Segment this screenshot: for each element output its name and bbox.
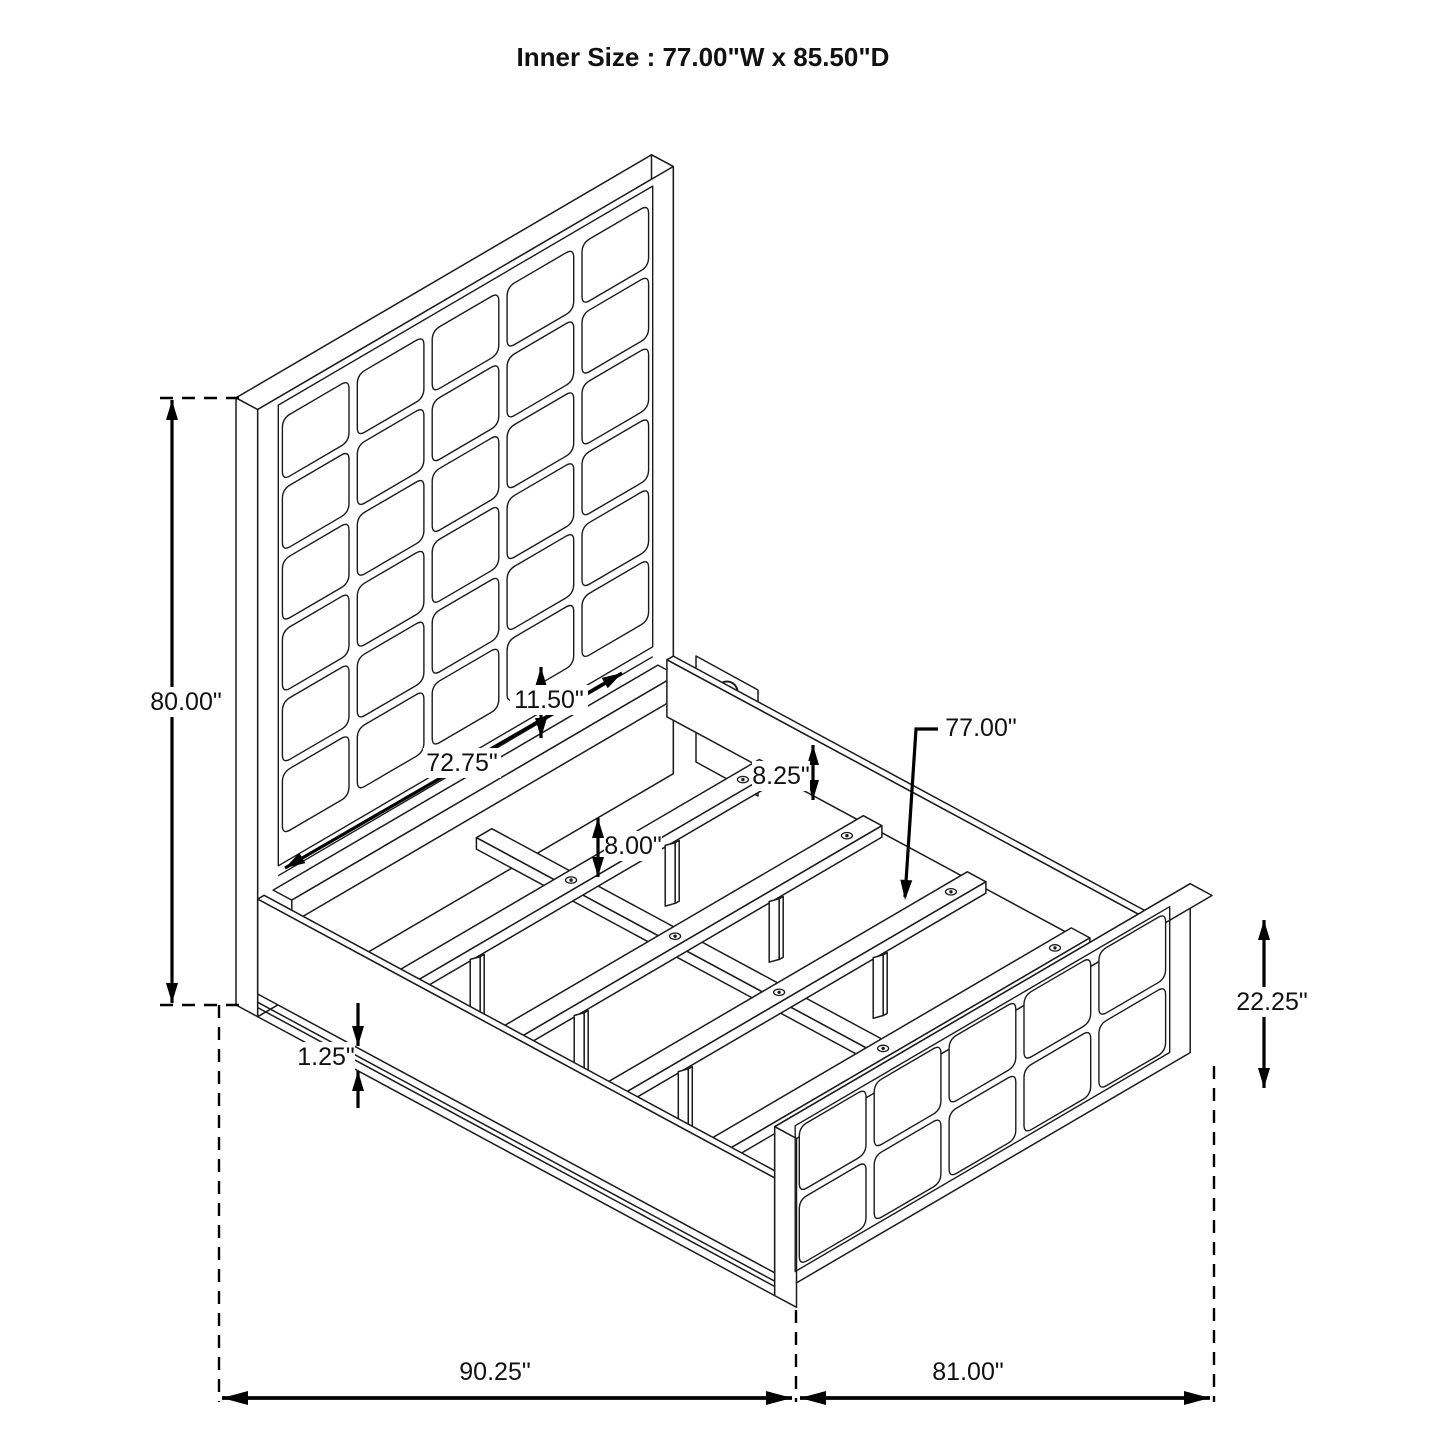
screw-dot: [881, 1047, 884, 1050]
dim-label-22-25: 22.25": [1236, 988, 1307, 1016]
dim-slat-length: 77.00": [942, 713, 1020, 743]
dim-label-72-75: 72.75": [426, 749, 497, 777]
screw-dot: [949, 890, 952, 893]
inner-size-title: Inner Size : 77.00"W x 85.50"D: [517, 42, 890, 72]
dim-footboard-height: 22.25": [1233, 987, 1311, 1017]
line-art-shape: [665, 843, 675, 907]
dim-rail-top-to-slat: 8.25": [752, 761, 810, 791]
dimension-arrowhead: [1258, 920, 1270, 940]
line-art-shape: [675, 841, 679, 904]
dimension-arrowhead: [1184, 1391, 1210, 1405]
bed-dimension-diagram: Inner Size : 77.00"W x 85.50"D 80.00" 72…: [0, 0, 1445, 1445]
dim-label-1-25: 1.25": [297, 1043, 355, 1071]
screw-dot: [845, 834, 848, 837]
dimension-arrowhead: [766, 1391, 792, 1405]
dimension-arrowhead: [166, 983, 178, 1003]
line-art-shape: [236, 398, 258, 1017]
dim-label-77-00: 77.00": [945, 714, 1016, 742]
dimension-arrowhead: [800, 1391, 826, 1405]
line-art-shape: [883, 953, 887, 1016]
diagram-page: Inner Size : 77.00"W x 85.50"D 80.00" 72…: [0, 0, 1445, 1445]
bed-line-art: [160, 155, 1270, 1405]
screw-dot: [673, 934, 676, 937]
dimension-arrowhead: [166, 400, 178, 420]
dim-label-90-25: 90.25": [459, 1358, 530, 1386]
dim-slat-leg-height: 8.00": [604, 831, 662, 861]
line-art-shape: [584, 1011, 588, 1074]
line-art-shape: [769, 899, 779, 963]
line-art-shape: [480, 955, 484, 1018]
line-art-shape: [775, 1127, 797, 1308]
dim-headboard-height: 80.00": [147, 687, 225, 717]
screw-dot: [1053, 946, 1056, 949]
line-art-shape: [688, 1067, 692, 1130]
dimension-arrowhead: [352, 1071, 364, 1091]
dim-overall-depth: 90.25": [459, 1358, 530, 1386]
dim-panel-to-rail-gap: 11.50": [510, 685, 588, 715]
dim-label-8-00: 8.00": [604, 832, 662, 860]
screw-dot: [777, 991, 780, 994]
dim-label-8-25: 8.25": [752, 762, 810, 790]
screw-dot: [569, 878, 572, 881]
dim-headboard-inner-width: 72.75": [423, 748, 501, 778]
screw-dot: [741, 778, 744, 781]
dimension-arrowhead: [222, 1391, 248, 1405]
line-art-shape: [779, 897, 783, 960]
dim-label-80: 80.00": [150, 688, 221, 716]
dim-label-11-50: 11.50": [514, 686, 584, 714]
dim-label-81-00: 81.00": [932, 1358, 1003, 1386]
dim-base-rail-thickness: 1.25": [297, 1042, 355, 1072]
dimension-arrowhead: [1258, 1068, 1270, 1088]
line-art-shape: [873, 955, 883, 1019]
dim-overall-width: 81.00": [932, 1358, 1003, 1386]
